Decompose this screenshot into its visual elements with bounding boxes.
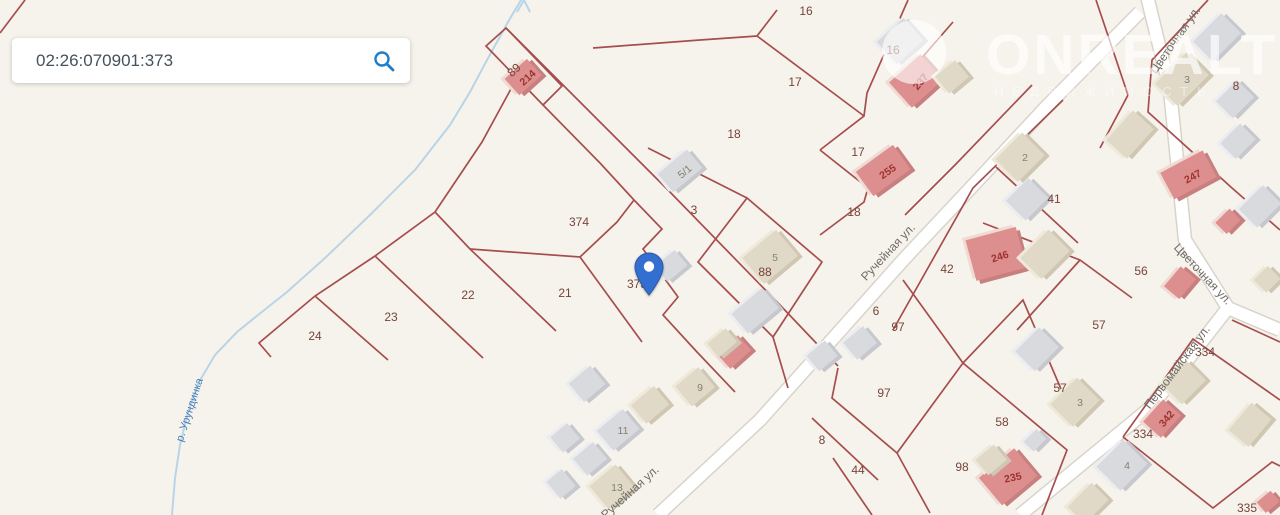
search-box [12, 38, 410, 83]
building-number: 2 [1022, 152, 1028, 164]
search-button[interactable] [366, 49, 410, 73]
parcel-label: 88 [758, 265, 771, 279]
parcel-label: 334 [1133, 427, 1153, 441]
parcel-label: 22 [461, 288, 474, 302]
parcel-label: 98 [955, 460, 968, 474]
watermark-brand: ONREALT [986, 22, 1278, 88]
parcel-label: 6 [873, 304, 880, 318]
parcel-label: 58 [995, 415, 1008, 429]
parcel-label: 57 [1092, 318, 1105, 332]
parcel-label: 17 [851, 145, 864, 159]
parcel-label: 18 [727, 127, 740, 141]
parcel-label: 44 [851, 463, 864, 477]
parcel-label: 335 [1237, 501, 1257, 515]
building-number: 9 [697, 382, 703, 394]
map-pin-icon[interactable] [634, 252, 664, 296]
search-icon [372, 49, 396, 73]
parcel-label: 16 [799, 4, 812, 18]
parcel-label: 42 [940, 262, 953, 276]
parcel-label: 57 [1053, 381, 1066, 395]
building-number: 11 [618, 425, 629, 437]
parcel-label: 56 [1134, 264, 1147, 278]
parcel-label: 41 [1047, 192, 1060, 206]
watermark-logo-icon [882, 20, 946, 84]
parcel-label: 23 [384, 310, 397, 324]
map-canvas[interactable]: 2142372552472463422355/11149132353 р. Ур… [0, 0, 1280, 515]
parcel-label: 17 [788, 75, 801, 89]
watermark-tagline: НЕДВИЖИМОСТЬ [994, 84, 1215, 99]
building-number: 5 [772, 252, 778, 264]
building-number: 4 [1124, 460, 1130, 472]
parcel-label: 24 [308, 329, 321, 343]
building-number: 3 [1077, 397, 1083, 409]
parcel-label: 3 [691, 203, 698, 217]
parcel-label: 374 [569, 215, 589, 229]
parcel-label: 97 [877, 386, 890, 400]
parcel-label: 8 [819, 433, 826, 447]
parcel-label: 97 [891, 320, 904, 334]
parcel-label: 334 [1195, 345, 1215, 359]
parcel-label: 18 [847, 205, 860, 219]
search-input[interactable] [34, 50, 366, 72]
parcel-label: 21 [558, 286, 571, 300]
